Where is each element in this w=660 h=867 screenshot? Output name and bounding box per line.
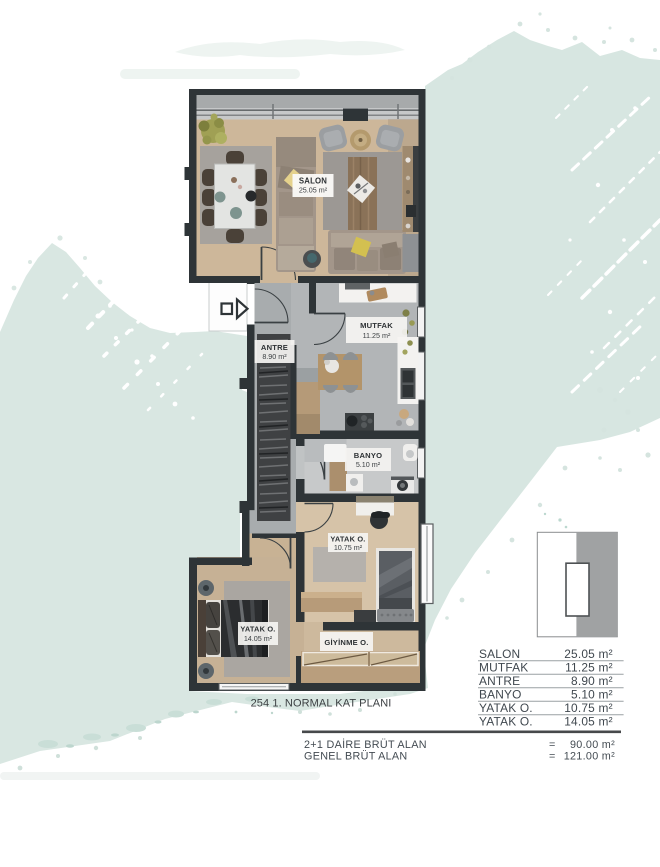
svg-text:m²: m² — [599, 688, 613, 702]
svg-text:m²: m² — [599, 701, 613, 715]
svg-text:=: = — [549, 739, 556, 751]
svg-text:BANYO: BANYO — [479, 688, 522, 702]
svg-text:25.05: 25.05 — [564, 647, 595, 661]
svg-text:ANTRE: ANTRE — [261, 343, 288, 352]
svg-text:11.25 m²: 11.25 m² — [363, 331, 391, 340]
svg-text:YATAK O.: YATAK O. — [479, 715, 533, 729]
svg-text:MUTFAK: MUTFAK — [479, 661, 528, 675]
svg-text:m²: m² — [599, 647, 613, 661]
svg-text:ANTRE: ANTRE — [479, 674, 520, 688]
svg-text:2+1 DAİRE BRÜT ALAN: 2+1 DAİRE BRÜT ALAN — [304, 738, 427, 751]
svg-text:14.05 m²: 14.05 m² — [244, 634, 273, 643]
svg-text:m²: m² — [599, 661, 613, 675]
svg-text:5.10 m²: 5.10 m² — [356, 460, 381, 469]
svg-text:BANYO: BANYO — [354, 451, 382, 460]
svg-text:10.75: 10.75 — [564, 701, 595, 715]
svg-text:11.25: 11.25 — [565, 661, 595, 675]
svg-text:SALON: SALON — [299, 177, 327, 186]
svg-text:YATAK O.: YATAK O. — [240, 625, 275, 634]
svg-text:MUTFAK: MUTFAK — [360, 321, 393, 330]
svg-text:10.75 m²: 10.75 m² — [334, 543, 363, 552]
svg-text:5.10: 5.10 — [571, 688, 595, 702]
svg-text:m²: m² — [599, 715, 613, 729]
svg-text:GİYİNME O.: GİYİNME O. — [324, 638, 368, 647]
svg-text:25.05 m²: 25.05 m² — [299, 186, 328, 195]
svg-text:14.05: 14.05 — [564, 715, 595, 729]
svg-text:90.00 m²: 90.00 m² — [570, 739, 615, 751]
svg-text:254 1. NORMAL KAT PLANI: 254 1. NORMAL KAT PLANI — [251, 698, 392, 710]
svg-text:=: = — [549, 751, 556, 763]
svg-text:SALON: SALON — [479, 647, 520, 661]
svg-text:8.90 m²: 8.90 m² — [262, 352, 287, 361]
svg-text:121.00 m²: 121.00 m² — [564, 751, 615, 763]
svg-text:YATAK O.: YATAK O. — [479, 701, 533, 715]
svg-text:m²: m² — [599, 674, 613, 688]
svg-text:GENEL BRÜT ALAN: GENEL BRÜT ALAN — [304, 751, 408, 763]
svg-text:8.90: 8.90 — [571, 674, 595, 688]
